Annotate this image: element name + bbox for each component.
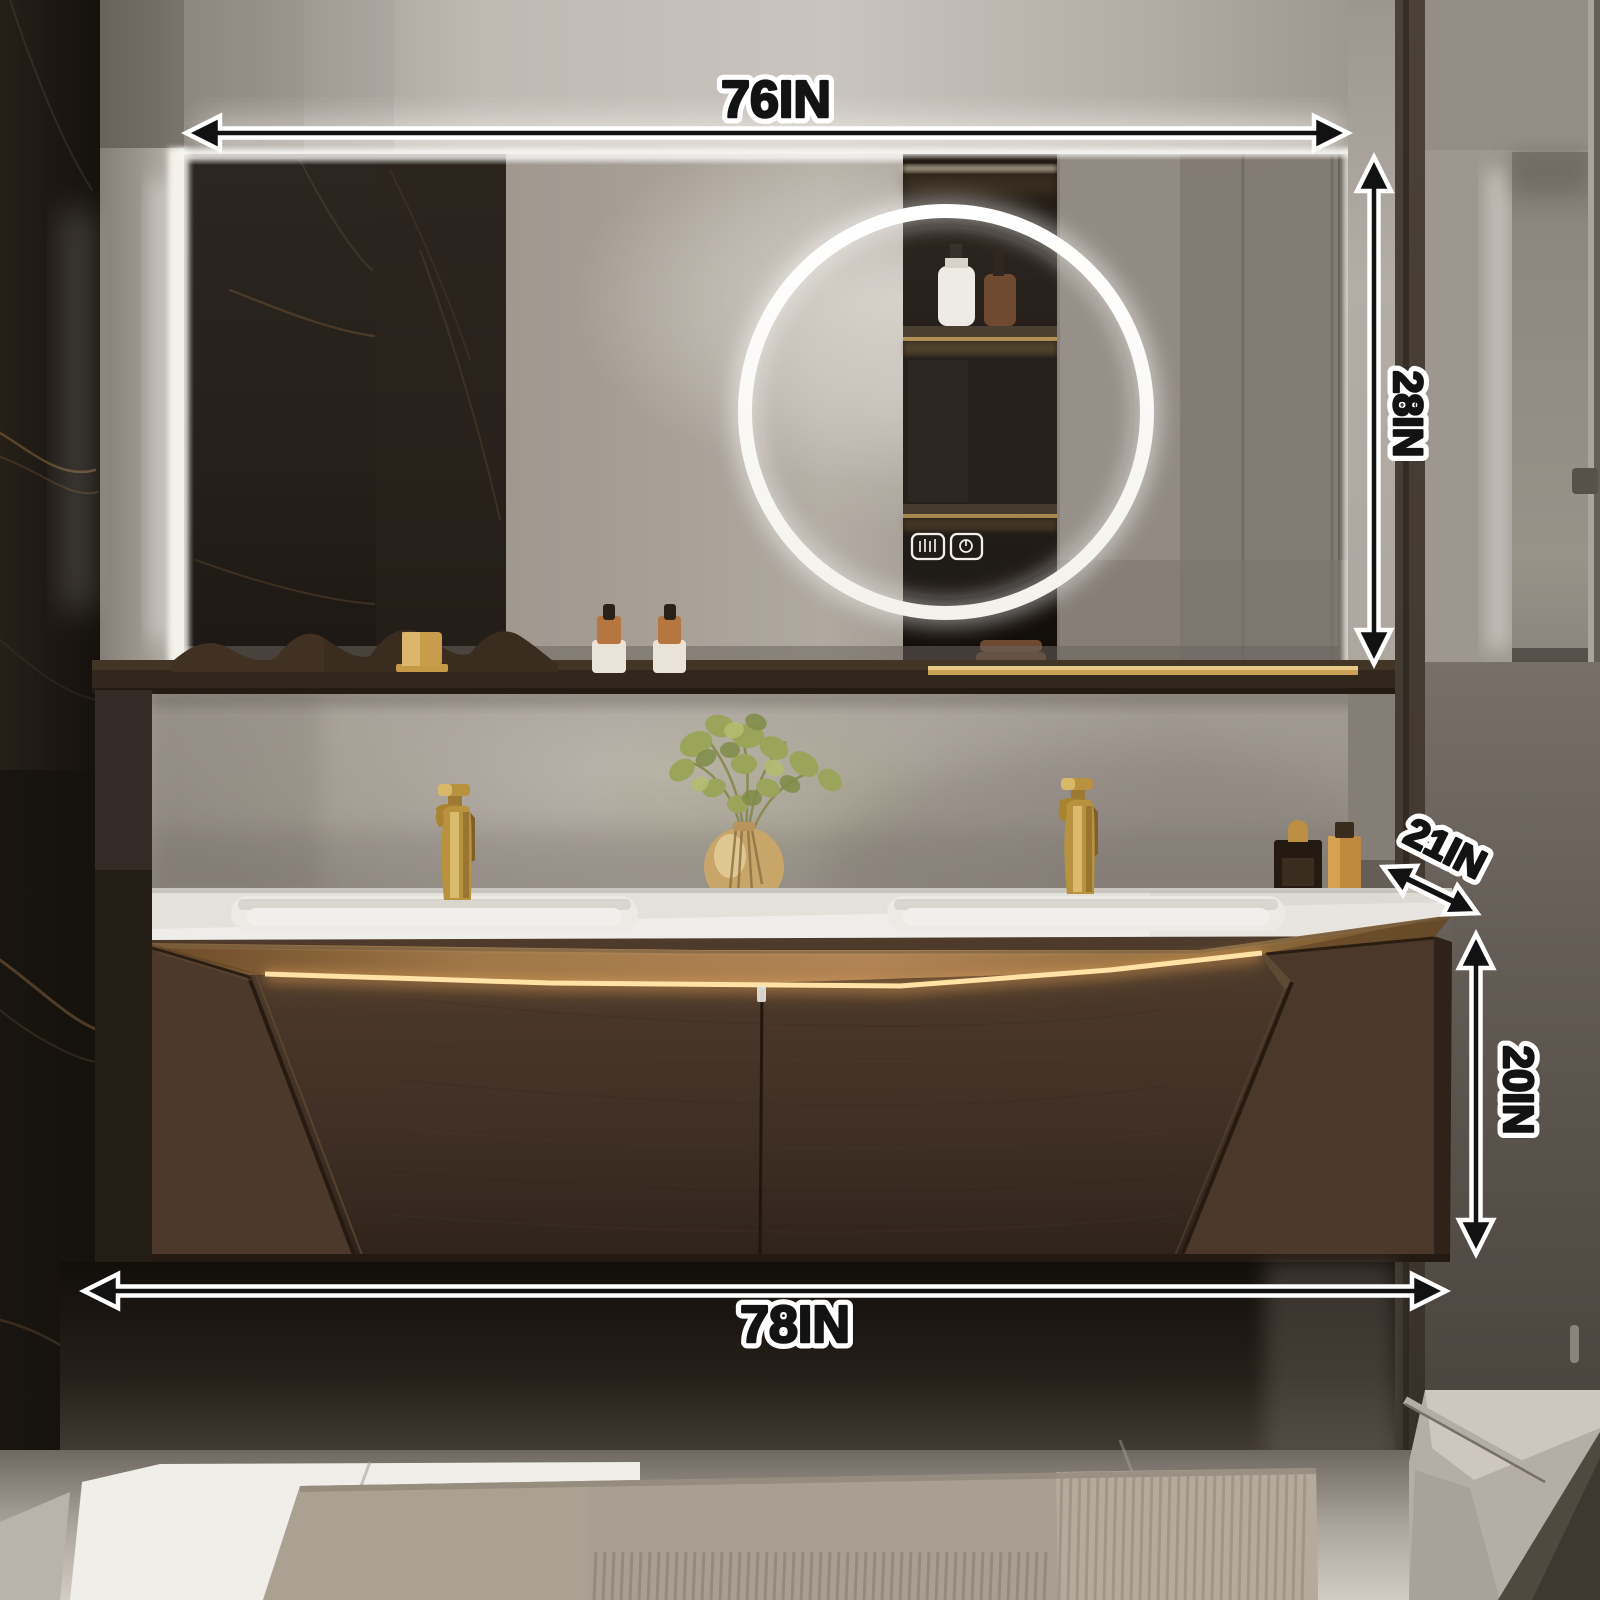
svg-text:76IN: 76IN xyxy=(721,71,831,129)
svg-text:20IN: 20IN xyxy=(1495,1046,1542,1135)
svg-text:78IN: 78IN xyxy=(740,1296,850,1354)
svg-text:28IN: 28IN xyxy=(1385,371,1431,458)
